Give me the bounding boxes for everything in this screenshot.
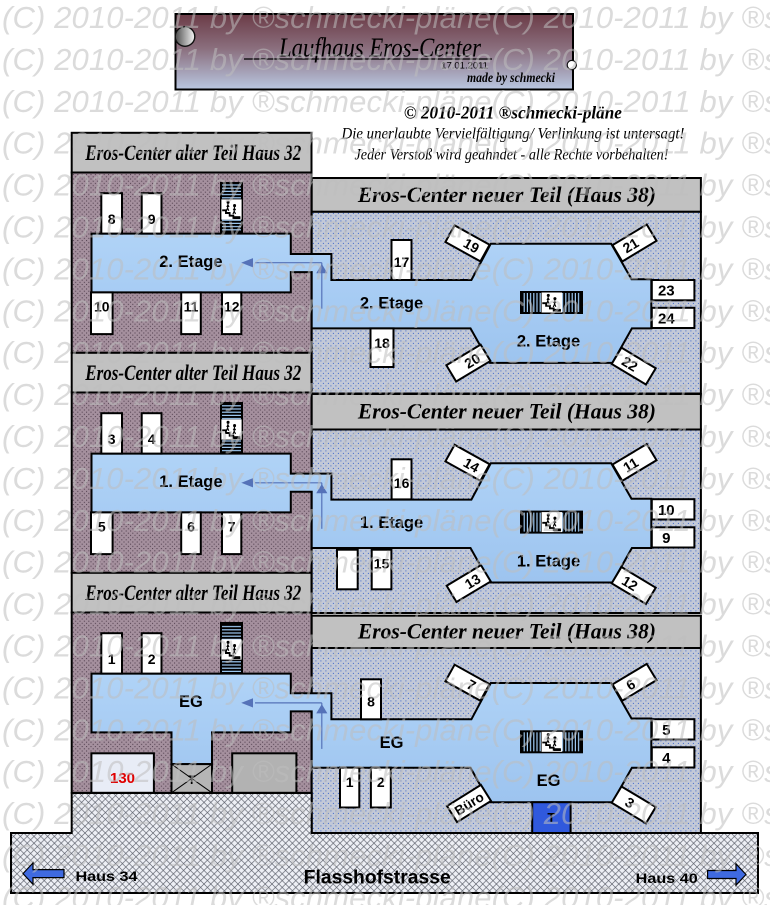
svg-text:(C) 2010-2011 by ®schmecki-p: (C) 2010-2011 by ®schmecki-pläne(C) 2010… bbox=[2, 419, 770, 454]
svg-text:(C) 2010-2011 by ®schmecki-p: (C) 2010-2011 by ®schmecki-pläne(C) 2010… bbox=[2, 0, 770, 35]
svg-text:(C) 2010-2011 by ®schmecki-p: (C) 2010-2011 by ®schmecki-pläne(C) 2010… bbox=[2, 335, 770, 370]
svg-text:(C) 2010-2011 by ®schmecki-p: (C) 2010-2011 by ®schmecki-pläne(C) 2010… bbox=[2, 84, 770, 119]
svg-text:(C) 2010-2011 by ®schmecki-p: (C) 2010-2011 by ®schmecki-pläne(C) 2010… bbox=[2, 796, 770, 831]
svg-text:(C) 2010-2011 by ®schmecki-p: (C) 2010-2011 by ®schmecki-pläne(C) 2010… bbox=[2, 838, 770, 873]
svg-text:(C) 2010-2011 by ®schmecki-p: (C) 2010-2011 by ®schmecki-pläne(C) 2010… bbox=[2, 377, 770, 412]
svg-text:(C) 2010-2011 by ®schmecki-p: (C) 2010-2011 by ®schmecki-pläne(C) 2010… bbox=[2, 168, 770, 203]
svg-text:(C) 2010-2011 by ®schmecki-p: (C) 2010-2011 by ®schmecki-pläne(C) 2010… bbox=[2, 293, 770, 328]
svg-text:(C) 2010-2011 by ®schmecki-p: (C) 2010-2011 by ®schmecki-pläne(C) 2010… bbox=[2, 210, 770, 245]
svg-text:(C) 2010-2011 by ®schmecki-p: (C) 2010-2011 by ®schmecki-pläne(C) 2010… bbox=[2, 126, 770, 161]
svg-text:(C) 2010-2011 by ®schmecki-p: (C) 2010-2011 by ®schmecki-pläne(C) 2010… bbox=[2, 587, 770, 622]
svg-text:(C) 2010-2011 by ®schmecki-p: (C) 2010-2011 by ®schmecki-pläne(C) 2010… bbox=[2, 754, 770, 789]
svg-text:(C) 2010-2011 by ®schmecki-p: (C) 2010-2011 by ®schmecki-pläne(C) 2010… bbox=[2, 251, 770, 286]
svg-text:(C) 2010-2011 by ®schmecki-p: (C) 2010-2011 by ®schmecki-pläne(C) 2010… bbox=[2, 670, 770, 705]
svg-text:(C) 2010-2011 by ®schmecki-p: (C) 2010-2011 by ®schmecki-pläne(C) 2010… bbox=[2, 629, 770, 664]
svg-text:(C) 2010-2011 by ®schmecki-p: (C) 2010-2011 by ®schmecki-pläne(C) 2010… bbox=[2, 503, 770, 538]
svg-text:(C) 2010-2011 by ®schmecki-p: (C) 2010-2011 by ®schmecki-pläne(C) 2010… bbox=[2, 461, 770, 496]
svg-text:(C) 2010-2011 by ®schmecki-p: (C) 2010-2011 by ®schmecki-pläne(C) 2010… bbox=[2, 42, 770, 77]
svg-text:(C) 2010-2011 by ®schmecki-p: (C) 2010-2011 by ®schmecki-pläne(C) 2010… bbox=[2, 712, 770, 747]
svg-text:(C) 2010-2011 by ®schmecki-p: (C) 2010-2011 by ®schmecki-pläne(C) 2010… bbox=[2, 545, 770, 580]
svg-text:(C) 2010-2011 by ®schmecki-p: (C) 2010-2011 by ®schmecki-pläne(C) 2010… bbox=[2, 880, 770, 905]
